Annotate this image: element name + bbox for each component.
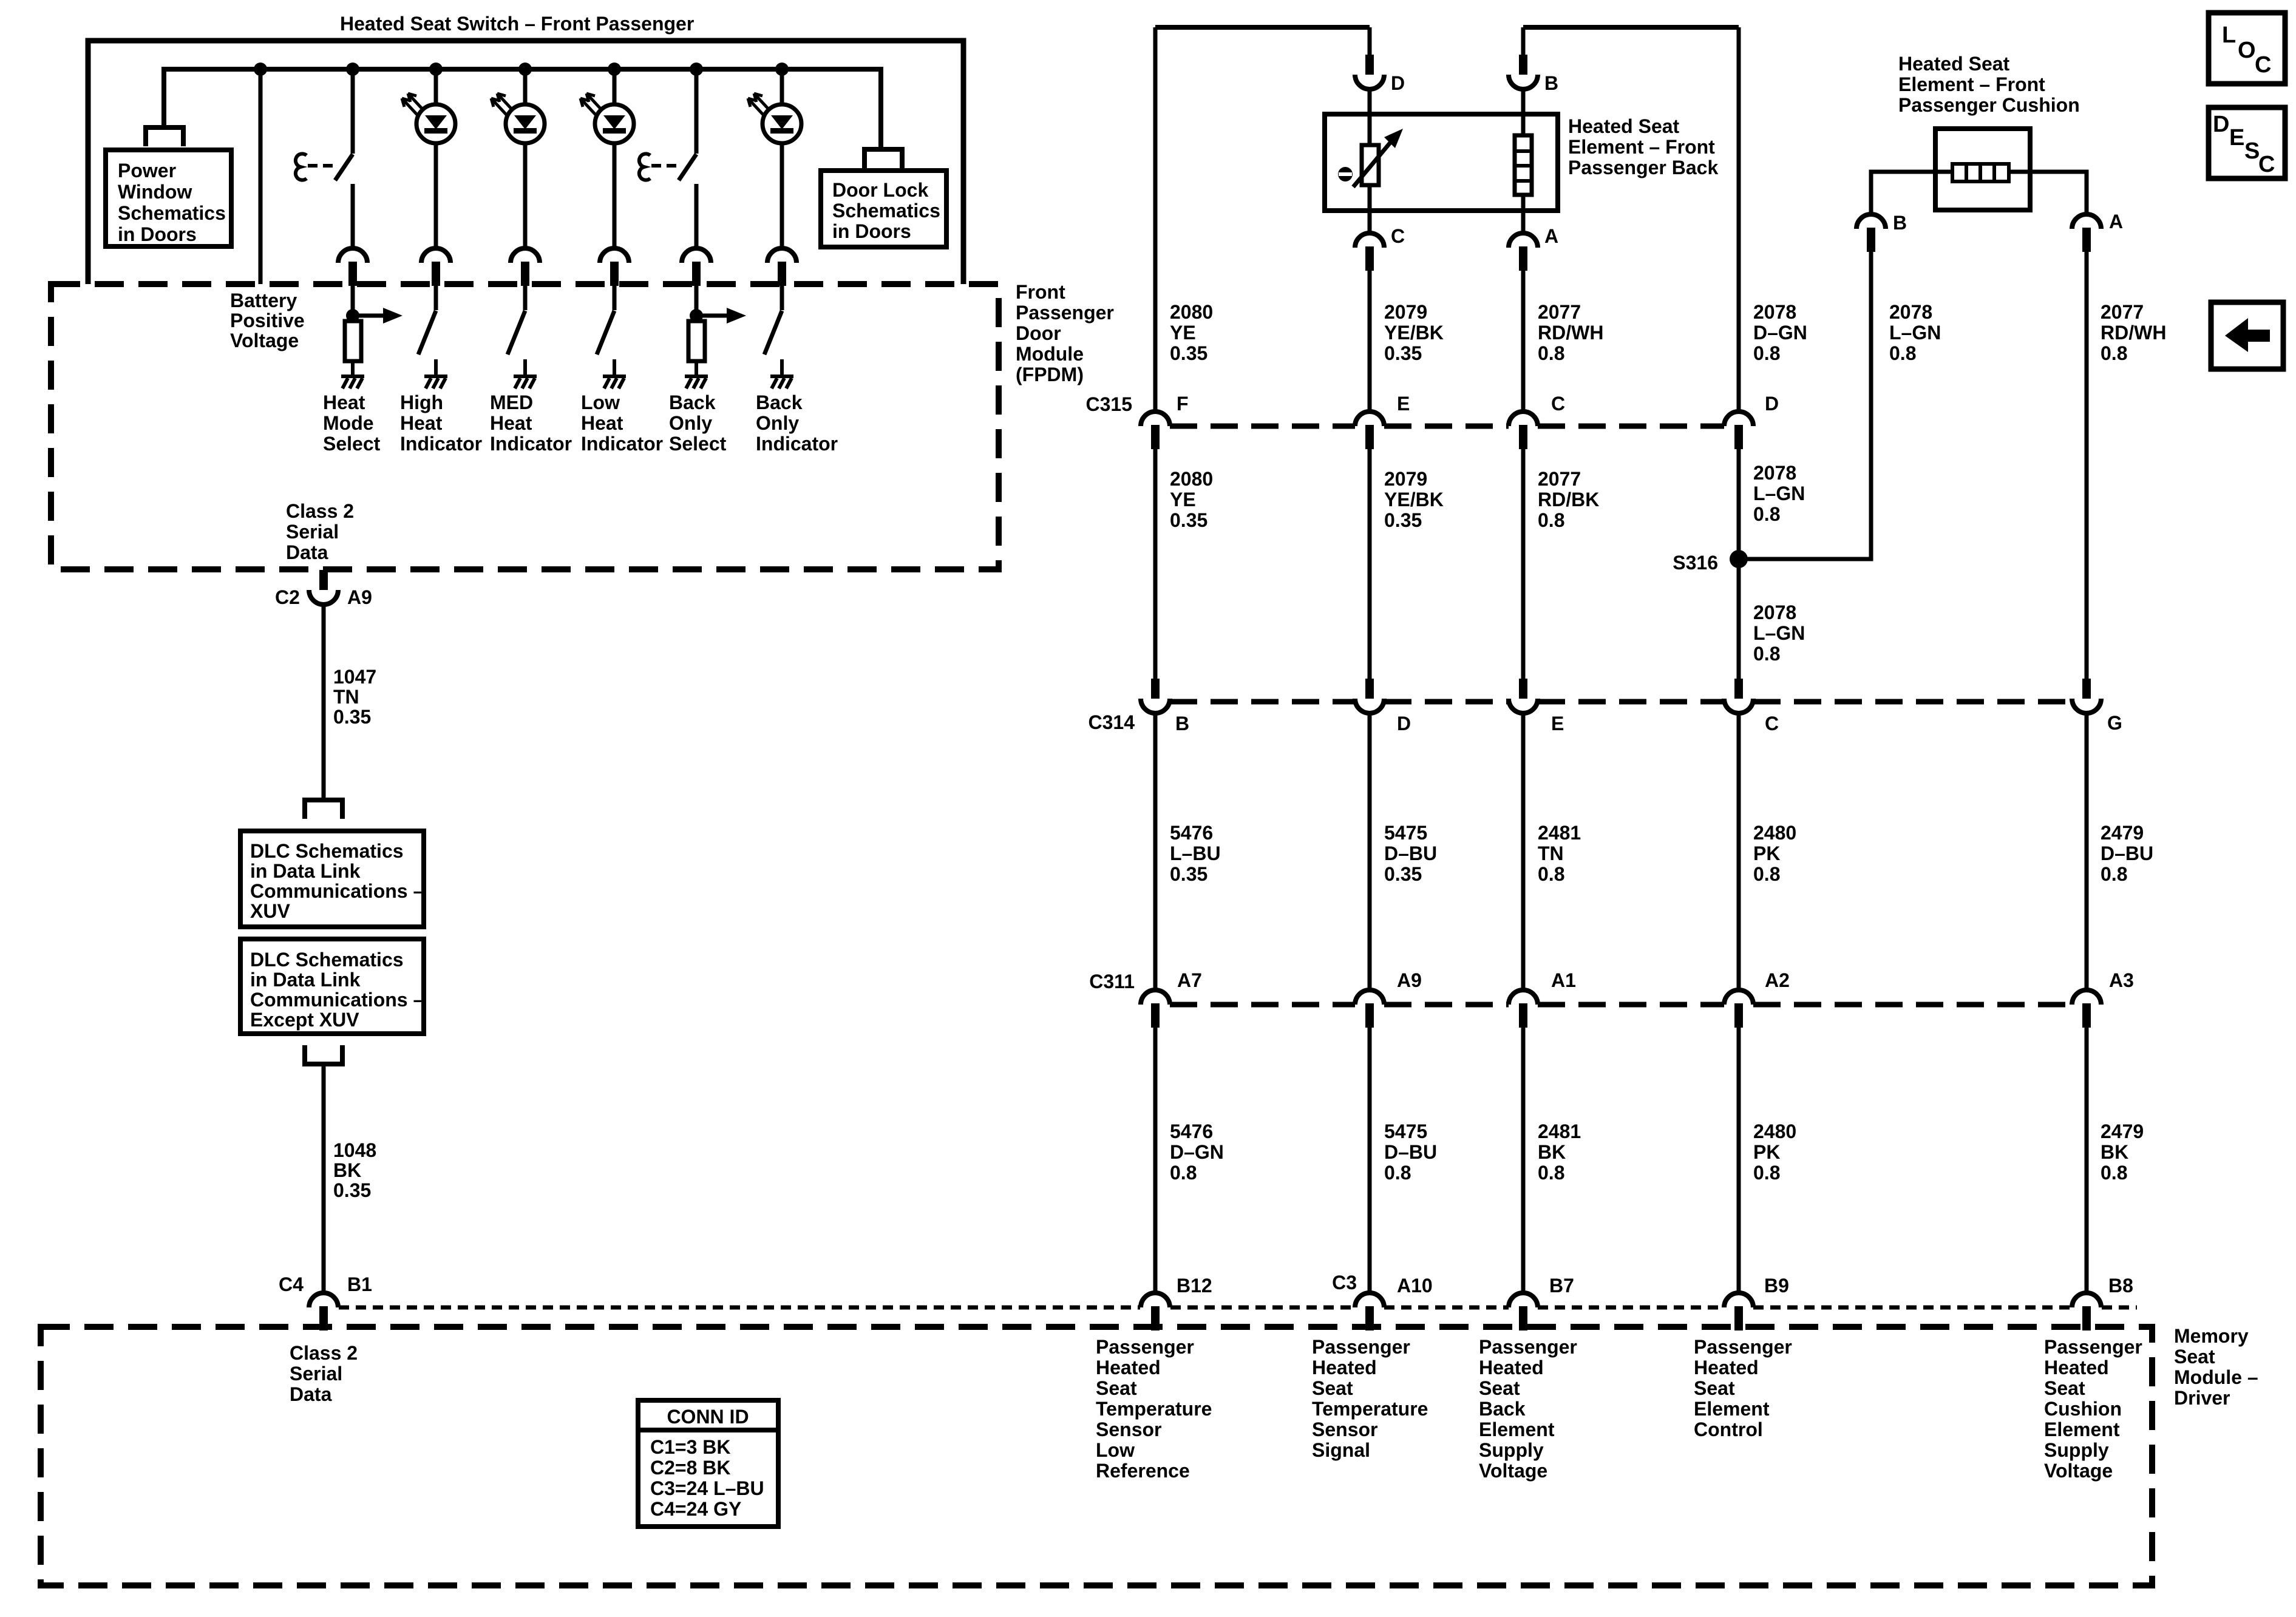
svg-text:High: High [400,392,443,413]
svg-text:Front: Front [1016,281,1065,303]
svg-text:0.8: 0.8 [2101,1162,2127,1184]
svg-text:2481: 2481 [1538,1120,1581,1142]
svg-text:Heat: Heat [581,412,623,434]
svg-text:D–BU: D–BU [1384,1141,1437,1163]
svg-text:0.35: 0.35 [333,706,371,728]
svg-text:D: D [1397,713,1411,734]
svg-text:Schematics: Schematics [118,202,226,224]
svg-text:Indicator: Indicator [756,433,838,455]
svg-text:Heated: Heated [1096,1357,1161,1378]
svg-text:Heat: Heat [400,412,443,434]
svg-text:C: C [1765,713,1779,734]
svg-text:2479: 2479 [2101,1120,2144,1142]
svg-text:Passenger: Passenger [1096,1336,1194,1358]
svg-text:Select: Select [669,433,727,455]
svg-text:B8: B8 [2108,1275,2133,1297]
svg-text:DLC Schematics: DLC Schematics [250,840,404,862]
svg-text:C1=3 BK: C1=3 BK [650,1436,731,1458]
svg-text:Select: Select [323,433,381,455]
svg-text:2077: 2077 [1538,468,1581,490]
svg-text:0.35: 0.35 [1170,342,1207,364]
svg-text:C315: C315 [1086,393,1133,415]
svg-text:1047: 1047 [333,666,376,688]
svg-text:Passenger: Passenger [1694,1336,1792,1358]
svg-text:F: F [1177,393,1189,415]
svg-text:Element – Front: Element – Front [1898,73,2045,95]
svg-text:Passenger Back: Passenger Back [1568,157,1718,178]
svg-text:0.8: 0.8 [1753,342,1780,364]
svg-text:0.35: 0.35 [1170,509,1207,531]
svg-text:TN: TN [333,686,359,708]
svg-text:B: B [1893,212,1907,234]
svg-text:L–GN: L–GN [1889,322,1941,344]
svg-text:Voltage: Voltage [2044,1460,2113,1482]
svg-text:Driver: Driver [2174,1387,2230,1409]
svg-text:B: B [1544,72,1558,94]
svg-text:A7: A7 [1177,969,1202,991]
svg-text:Voltage: Voltage [230,330,299,351]
svg-text:CONN ID: CONN ID [667,1406,749,1428]
svg-text:2079: 2079 [1384,301,1427,323]
svg-text:E: E [1551,713,1564,734]
svg-text:D–GN: D–GN [1753,322,1807,344]
svg-text:Passenger: Passenger [2044,1336,2142,1358]
svg-text:C: C [2255,52,2271,78]
svg-text:C2: C2 [275,586,300,608]
svg-text:Back: Back [756,392,803,413]
svg-text:Battery: Battery [230,290,297,311]
svg-text:C314: C314 [1089,711,1135,733]
svg-text:B: B [1175,713,1189,734]
svg-text:Passenger: Passenger [1479,1336,1577,1358]
svg-text:2080: 2080 [1170,468,1213,490]
svg-text:TN: TN [1538,842,1564,864]
svg-text:2077: 2077 [1538,301,1581,323]
svg-text:0.8: 0.8 [1753,503,1780,525]
svg-text:Sensor: Sensor [1096,1419,1161,1440]
svg-text:2480: 2480 [1753,822,1796,844]
svg-text:BK: BK [1538,1141,1566,1163]
svg-text:0.35: 0.35 [1170,863,1207,885]
svg-text:A10: A10 [1397,1275,1433,1297]
svg-text:Class 2: Class 2 [290,1342,358,1364]
svg-text:Door: Door [1016,322,1061,344]
svg-text:5476: 5476 [1170,822,1213,844]
svg-text:D: D [1391,72,1405,94]
svg-text:Heat: Heat [323,392,365,413]
svg-text:Heated: Heated [1694,1357,1759,1378]
svg-text:Heated: Heated [1479,1357,1544,1378]
svg-text:0.8: 0.8 [1538,1162,1564,1184]
svg-text:BK: BK [333,1159,361,1181]
svg-text:5475: 5475 [1384,1120,1427,1142]
svg-text:PK: PK [1753,1141,1780,1163]
svg-text:Low: Low [581,392,620,413]
svg-text:Data: Data [290,1383,332,1405]
svg-text:Heated Seat Switch – Front Pas: Heated Seat Switch – Front Passenger [340,13,694,35]
svg-text:B1: B1 [347,1273,372,1295]
svg-text:0.35: 0.35 [1384,342,1422,364]
svg-text:0.8: 0.8 [1753,1162,1780,1184]
svg-text:Serial: Serial [290,1363,342,1385]
svg-text:YE: YE [1170,489,1196,510]
svg-text:Indicator: Indicator [400,433,482,455]
svg-text:Memory: Memory [2174,1325,2249,1347]
svg-text:0.35: 0.35 [333,1179,371,1201]
svg-text:Sensor: Sensor [1312,1419,1377,1440]
svg-text:S: S [2244,138,2260,164]
svg-text:Seat: Seat [1694,1377,1735,1399]
svg-text:2481: 2481 [1538,822,1581,844]
svg-text:0.8: 0.8 [1538,342,1564,364]
svg-text:Door Lock: Door Lock [832,179,928,201]
svg-text:E: E [2229,125,2244,151]
svg-text:Voltage: Voltage [1479,1460,1547,1482]
svg-text:0.8: 0.8 [2101,863,2127,885]
svg-text:5475: 5475 [1384,822,1427,844]
svg-text:Element – Front: Element – Front [1568,136,1715,158]
svg-text:0.8: 0.8 [1170,1162,1197,1184]
svg-text:Heated Seat: Heated Seat [1898,53,2010,75]
svg-text:A3: A3 [2109,969,2134,991]
svg-text:B7: B7 [1549,1275,1574,1297]
svg-text:Except XUV: Except XUV [250,1009,359,1031]
svg-text:2078: 2078 [1753,602,1796,623]
svg-text:Element: Element [1694,1398,1770,1420]
svg-text:0.8: 0.8 [1538,509,1564,531]
svg-text:O: O [2238,38,2256,63]
svg-text:Class 2: Class 2 [286,500,354,522]
svg-text:Temperature: Temperature [1312,1398,1428,1420]
svg-text:Indicator: Indicator [490,433,572,455]
svg-text:1048: 1048 [333,1139,376,1161]
svg-text:Back: Back [1479,1398,1526,1420]
svg-text:in Doors: in Doors [832,220,911,242]
svg-text:Heated Seat: Heated Seat [1568,115,1680,137]
svg-text:Communications –: Communications – [250,989,424,1011]
svg-text:Indicator: Indicator [581,433,663,455]
svg-text:S316: S316 [1673,552,1718,574]
svg-text:0.35: 0.35 [1384,509,1422,531]
svg-text:L–GN: L–GN [1753,622,1805,644]
svg-text:0.8: 0.8 [1889,342,1916,364]
svg-text:2079: 2079 [1384,468,1427,490]
svg-text:2480: 2480 [1753,1120,1796,1142]
svg-text:L–GN: L–GN [1753,483,1805,504]
svg-text:A2: A2 [1765,969,1790,991]
svg-text:MED: MED [490,392,533,413]
svg-text:C4: C4 [279,1273,304,1295]
svg-text:Power: Power [118,160,176,181]
svg-text:0.8: 0.8 [1753,643,1780,665]
svg-text:Mode: Mode [323,412,374,434]
svg-text:Module –: Module – [2174,1366,2258,1388]
svg-text:0.35: 0.35 [1384,863,1422,885]
svg-text:C3=24 L–BU: C3=24 L–BU [650,1477,764,1499]
svg-text:Only: Only [669,412,712,434]
svg-text:C3: C3 [1332,1272,1357,1293]
svg-text:YE: YE [1170,322,1196,344]
svg-text:Seat: Seat [2174,1346,2215,1368]
svg-text:Seat: Seat [2044,1377,2085,1399]
svg-text:(FPDM): (FPDM) [1016,364,1084,385]
svg-text:A1: A1 [1551,969,1576,991]
svg-text:DLC Schematics: DLC Schematics [250,949,404,971]
svg-text:Seat: Seat [1312,1377,1353,1399]
svg-text:BK: BK [2101,1141,2128,1163]
svg-text:C4=24 GY: C4=24 GY [650,1498,741,1520]
svg-text:0.8: 0.8 [1753,863,1780,885]
svg-text:Seat: Seat [1479,1377,1520,1399]
svg-text:Seat: Seat [1096,1377,1137,1399]
svg-text:G: G [2107,712,2122,734]
svg-text:0.8: 0.8 [1538,863,1564,885]
svg-text:Supply: Supply [2044,1439,2109,1461]
svg-text:Passenger Cushion: Passenger Cushion [1898,94,2080,116]
svg-text:0.8: 0.8 [1384,1162,1411,1184]
svg-text:2479: 2479 [2101,822,2144,844]
svg-text:Serial: Serial [286,521,339,543]
svg-text:PK: PK [1753,842,1780,864]
svg-text:C311: C311 [1089,971,1135,992]
svg-text:Communications –: Communications – [250,880,424,902]
svg-text:Heated: Heated [2044,1357,2109,1378]
svg-text:YE/BK: YE/BK [1384,489,1444,510]
svg-text:2077: 2077 [2101,301,2144,323]
svg-text:A9: A9 [347,586,372,608]
svg-text:L: L [2222,22,2236,48]
svg-text:2078: 2078 [1889,301,1932,323]
svg-text:Back: Back [669,392,716,413]
svg-text:B9: B9 [1764,1275,1789,1297]
svg-text:2080: 2080 [1170,301,1213,323]
svg-text:in Data Link: in Data Link [250,969,361,991]
svg-text:D–GN: D–GN [1170,1141,1224,1163]
svg-text:A9: A9 [1397,969,1422,991]
svg-text:D: D [1765,393,1779,415]
svg-text:XUV: XUV [250,900,290,922]
svg-text:Schematics: Schematics [832,200,940,222]
svg-text:0.8: 0.8 [2101,342,2127,364]
svg-text:Supply: Supply [1479,1439,1544,1461]
svg-text:RD/WH: RD/WH [1538,322,1603,344]
svg-text:Heated: Heated [1312,1357,1377,1378]
svg-text:in Doors: in Doors [118,223,197,245]
svg-text:D–BU: D–BU [2101,842,2153,864]
svg-text:C: C [1551,393,1565,415]
svg-text:Passenger: Passenger [1312,1336,1410,1358]
svg-text:Heat: Heat [490,412,532,434]
svg-text:D: D [2213,112,2229,137]
svg-text:RD/BK: RD/BK [1538,489,1599,510]
svg-text:Reference: Reference [1096,1460,1190,1482]
svg-text:2078: 2078 [1753,462,1796,484]
svg-text:RD/WH: RD/WH [2101,322,2166,344]
svg-text:Element: Element [2044,1419,2120,1440]
svg-text:A: A [2109,211,2123,232]
svg-text:E: E [1397,393,1410,415]
svg-text:Window: Window [118,181,192,203]
svg-text:B12: B12 [1177,1275,1212,1297]
svg-text:2078: 2078 [1753,301,1796,323]
svg-text:Temperature: Temperature [1096,1398,1212,1420]
svg-text:C: C [2258,152,2275,177]
svg-text:D–BU: D–BU [1384,842,1437,864]
svg-text:A: A [1544,225,1558,247]
svg-text:C2=8 BK: C2=8 BK [650,1457,731,1479]
svg-text:Cushion: Cushion [2044,1398,2122,1420]
svg-text:Signal: Signal [1312,1439,1370,1461]
svg-text:C: C [1391,225,1405,247]
svg-text:Passenger: Passenger [1016,302,1114,324]
svg-text:Only: Only [756,412,799,434]
svg-text:Element: Element [1479,1419,1555,1440]
svg-text:in Data Link: in Data Link [250,860,361,882]
svg-text:YE/BK: YE/BK [1384,322,1444,344]
svg-text:Positive: Positive [230,310,305,331]
svg-text:Module: Module [1016,343,1084,365]
svg-text:Control: Control [1694,1419,1763,1440]
svg-text:5476: 5476 [1170,1120,1213,1142]
svg-text:L–BU: L–BU [1170,842,1221,864]
svg-text:Data: Data [286,541,328,563]
svg-text:Low: Low [1096,1439,1135,1461]
